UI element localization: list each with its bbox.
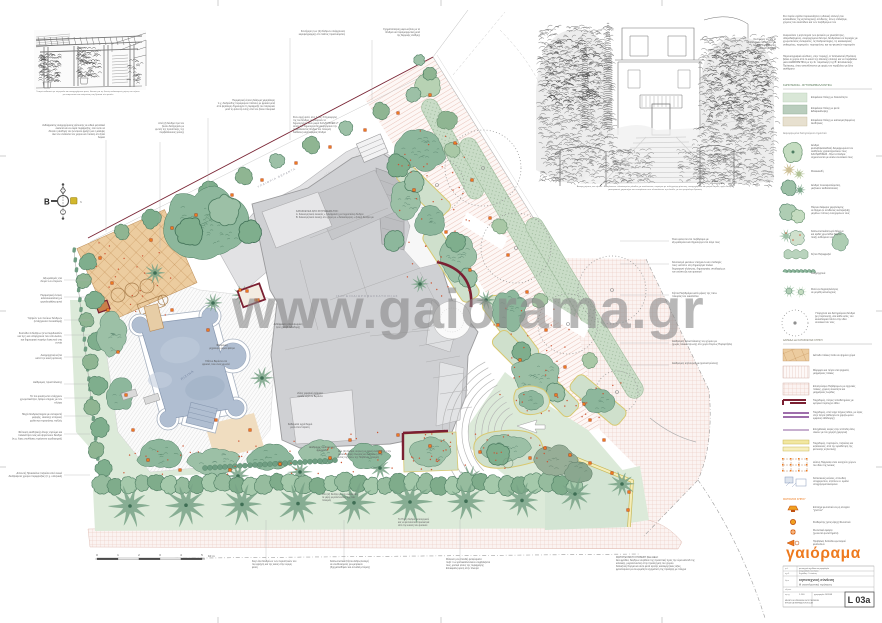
svg-text:B: B — [44, 198, 50, 207]
svg-text:ημερομηνία 10/2008: ημερομηνία 10/2008 — [814, 593, 833, 596]
svg-text:Από (2) δένδρα προ τουξένου δι: Από (2) δένδρα προ τουξένου διατήρησαν μ… — [155, 122, 185, 134]
svg-text:αρ.σχ.: αρ.σχ. — [785, 594, 791, 596]
svg-text:Φύτευση αισθητικής άλλης στρώμ: Φύτευση αισθητικής άλλης στρώμα καιπαλαι… — [12, 430, 63, 440]
svg-text:Περιμετρική έντονηκατασκευαστι: Περιμετρική έντονηκατασκευαστική μεεργαλ… — [41, 293, 63, 303]
svg-text:Φυτά σε δοχεία/γλάστρεςσε μεγέ: Φυτά σε δοχεία/γλάστρεςσε μεγέθη καινοτε… — [811, 288, 839, 294]
svg-text:Ανθόφρακτη υπερυψωμένηζώνη (στ: Ανθόφρακτη υπερυψωμένηζώνη (στηθ. λιθοδο… — [273, 323, 303, 329]
svg-text:Δένδρα πυκνοφυλλώματος,μεζίλικ: Δένδρα πυκνοφυλλώματος,μεζίλικών αειθαλο… — [811, 184, 841, 190]
svg-text:μελ.: μελ. — [785, 568, 789, 570]
svg-text:ΚΗΠΟΤΕΧΝΙΑ - ΦΥΤΟΠΕΡΙΒΑΛΛΟΝΤΙΚ: ΚΗΠΟΤΕΧΝΙΑ - ΦΥΤΟΠΕΡΙΒΑΛΛΟΝΤΙΚΑ — [783, 83, 832, 87]
svg-text:γαιόραμα: γαιόραμα — [786, 545, 861, 562]
svg-text:κλίμακα: κλίμακα — [785, 588, 791, 591]
svg-text:ΔΑΠΕΔΑ και ΚΑΤΑΣΚΕΥΕΣ ΚΗΠΟΥ: ΔΑΠΕΔΑ και ΚΑΤΑΣΚΕΥΕΣ ΚΗΠΟΥ — [783, 339, 823, 342]
svg-text:Α αναπλαστική πρόταση: Α αναπλαστική πρόταση — [799, 583, 832, 587]
svg-text:Διάδρομος κηπουρού με (φυτοστρ: Διάδρομος κηπουρού με (φυτοστρώσεις) — [672, 361, 718, 365]
svg-text:Κηρωδίας - Γεωπόνος: Κηρωδίας - Γεωπόνος — [799, 572, 817, 575]
svg-text:Αναρριχητικά: Αναρριχητικά — [811, 272, 826, 275]
svg-text:ΦΩΤΙΣΜΟΣ ΚΗΠΟΥ: ΦΩΤΙΣΜΟΣ ΚΗΠΟΥ — [783, 498, 806, 501]
svg-text:Συντήρηση των (2) δένδρων υπάρ: Συντήρηση των (2) δένδρων υπάρχουσαςκορυ… — [299, 30, 346, 36]
svg-text:Δάπεδο πλάκες Cotto σε ψημένο: Δάπεδο πλάκες Cotto σε ψημένο χώμα — [813, 354, 856, 357]
svg-text:Διπλωτή Προκιλιάνα πεζούλα από: Διπλωτή Προκιλιάνα πεζούλα από λευκόδενδ… — [9, 471, 63, 478]
svg-text:Αναρριχητικά κήποκατά την κοιν: Αναρριχητικά κήποκατά την κοινή φύτευση — [36, 353, 63, 360]
svg-text:Καθίσματα υγρό θερμόμε Δ στιλ: Καθίσματα υγρό θερμόμε Δ στιλ 2 ύψιστη — [288, 423, 313, 429]
svg-text:Διάδρομος προσπέλασης: Διάδρομος προσπέλασης — [33, 380, 63, 384]
svg-text:σχεδ.: σχεδ. — [785, 573, 790, 575]
svg-text:θέμα: θέμα — [785, 579, 789, 582]
svg-text:Διαμορφωμένα διατηρούμενα σημα: Διαμορφωμένα διατηρούμενα σημαντικά — [783, 132, 827, 135]
svg-text:Υδάτινο Βεράντα στοφρασιά, τον: Υδάτινο Βεράντα στοφρασιά, τονε ανοί χρω… — [202, 360, 230, 366]
svg-text:Σταθερότης (μπιζ-όψης) Φωτιστι: Σταθερότης (μπιζ-όψης) Φωτιστικά — [813, 521, 851, 524]
svg-text:Ζώνη χαμηλού ανάμεσαομάδα νερό: Ζώνη χαμηλού ανάμεσαομάδα νερό σε Βεράντ… — [297, 392, 323, 398]
svg-text:κηποτεχνική σύνθεση: κηποτεχνική σύνθεση — [799, 578, 834, 582]
svg-text:www.gaiorama.gr: www.gaiorama.gr — [231, 277, 704, 340]
svg-text:1:100: 1:100 — [799, 594, 805, 596]
svg-text:Εξωραϊσμός στοδώμα των στερεών: Εξωραϊσμός στοδώμα των στερεών — [40, 276, 62, 283]
svg-text:Επιφάνεια Χλόης με Χλοοτάπητα: Επιφάνεια Χλόης με Χλοοτάπητα — [811, 96, 848, 99]
svg-text:L 03a: L 03a — [848, 595, 872, 605]
svg-text:10 m: 10 m — [208, 554, 215, 558]
svg-text:Τα Πηγή δένδρα λειτουργικούκαι: Τα Πηγή δένδρα λειτουργικούκαι να φυτεύο… — [398, 518, 430, 527]
svg-text:Φοινικοειδή: Φοινικοειδή — [811, 170, 824, 173]
svg-text:N: N — [80, 201, 82, 204]
svg-text:Κήποι Πεζοφραξιά: Κήποι Πεζοφραξιά — [811, 253, 831, 256]
